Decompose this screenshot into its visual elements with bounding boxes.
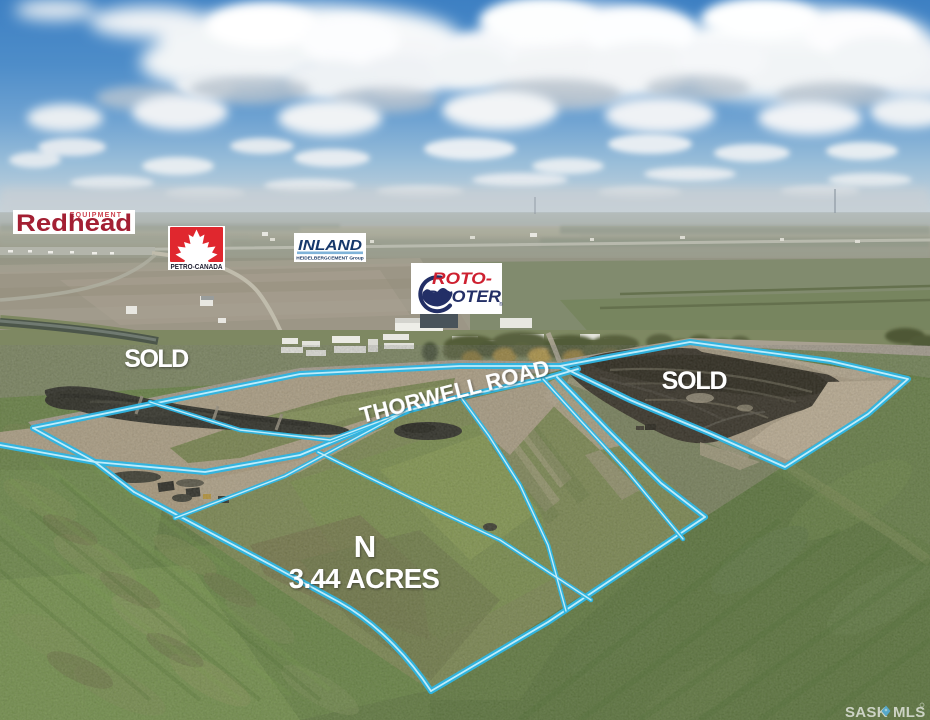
svg-text:Redhead: Redhead [16,210,132,237]
svg-text:ROTO-: ROTO- [432,270,493,288]
svg-text:3.44 ACRES: 3.44 ACRES [289,563,440,594]
svg-text:PETRO-CANADA: PETRO-CANADA [171,264,223,271]
svg-text:HEIDELBERGCEMENT Group: HEIDELBERGCEMENT Group [296,256,363,262]
svg-text:SOLD: SOLD [124,345,188,373]
svg-text:N: N [354,529,376,564]
svg-text:SOLD: SOLD [662,367,727,395]
svg-text:®: ® [499,301,503,308]
svg-text:INLAND: INLAND [298,237,362,254]
svg-text:SASK: SASK [845,704,888,720]
svg-text:ROOTER: ROOTER [425,288,501,306]
